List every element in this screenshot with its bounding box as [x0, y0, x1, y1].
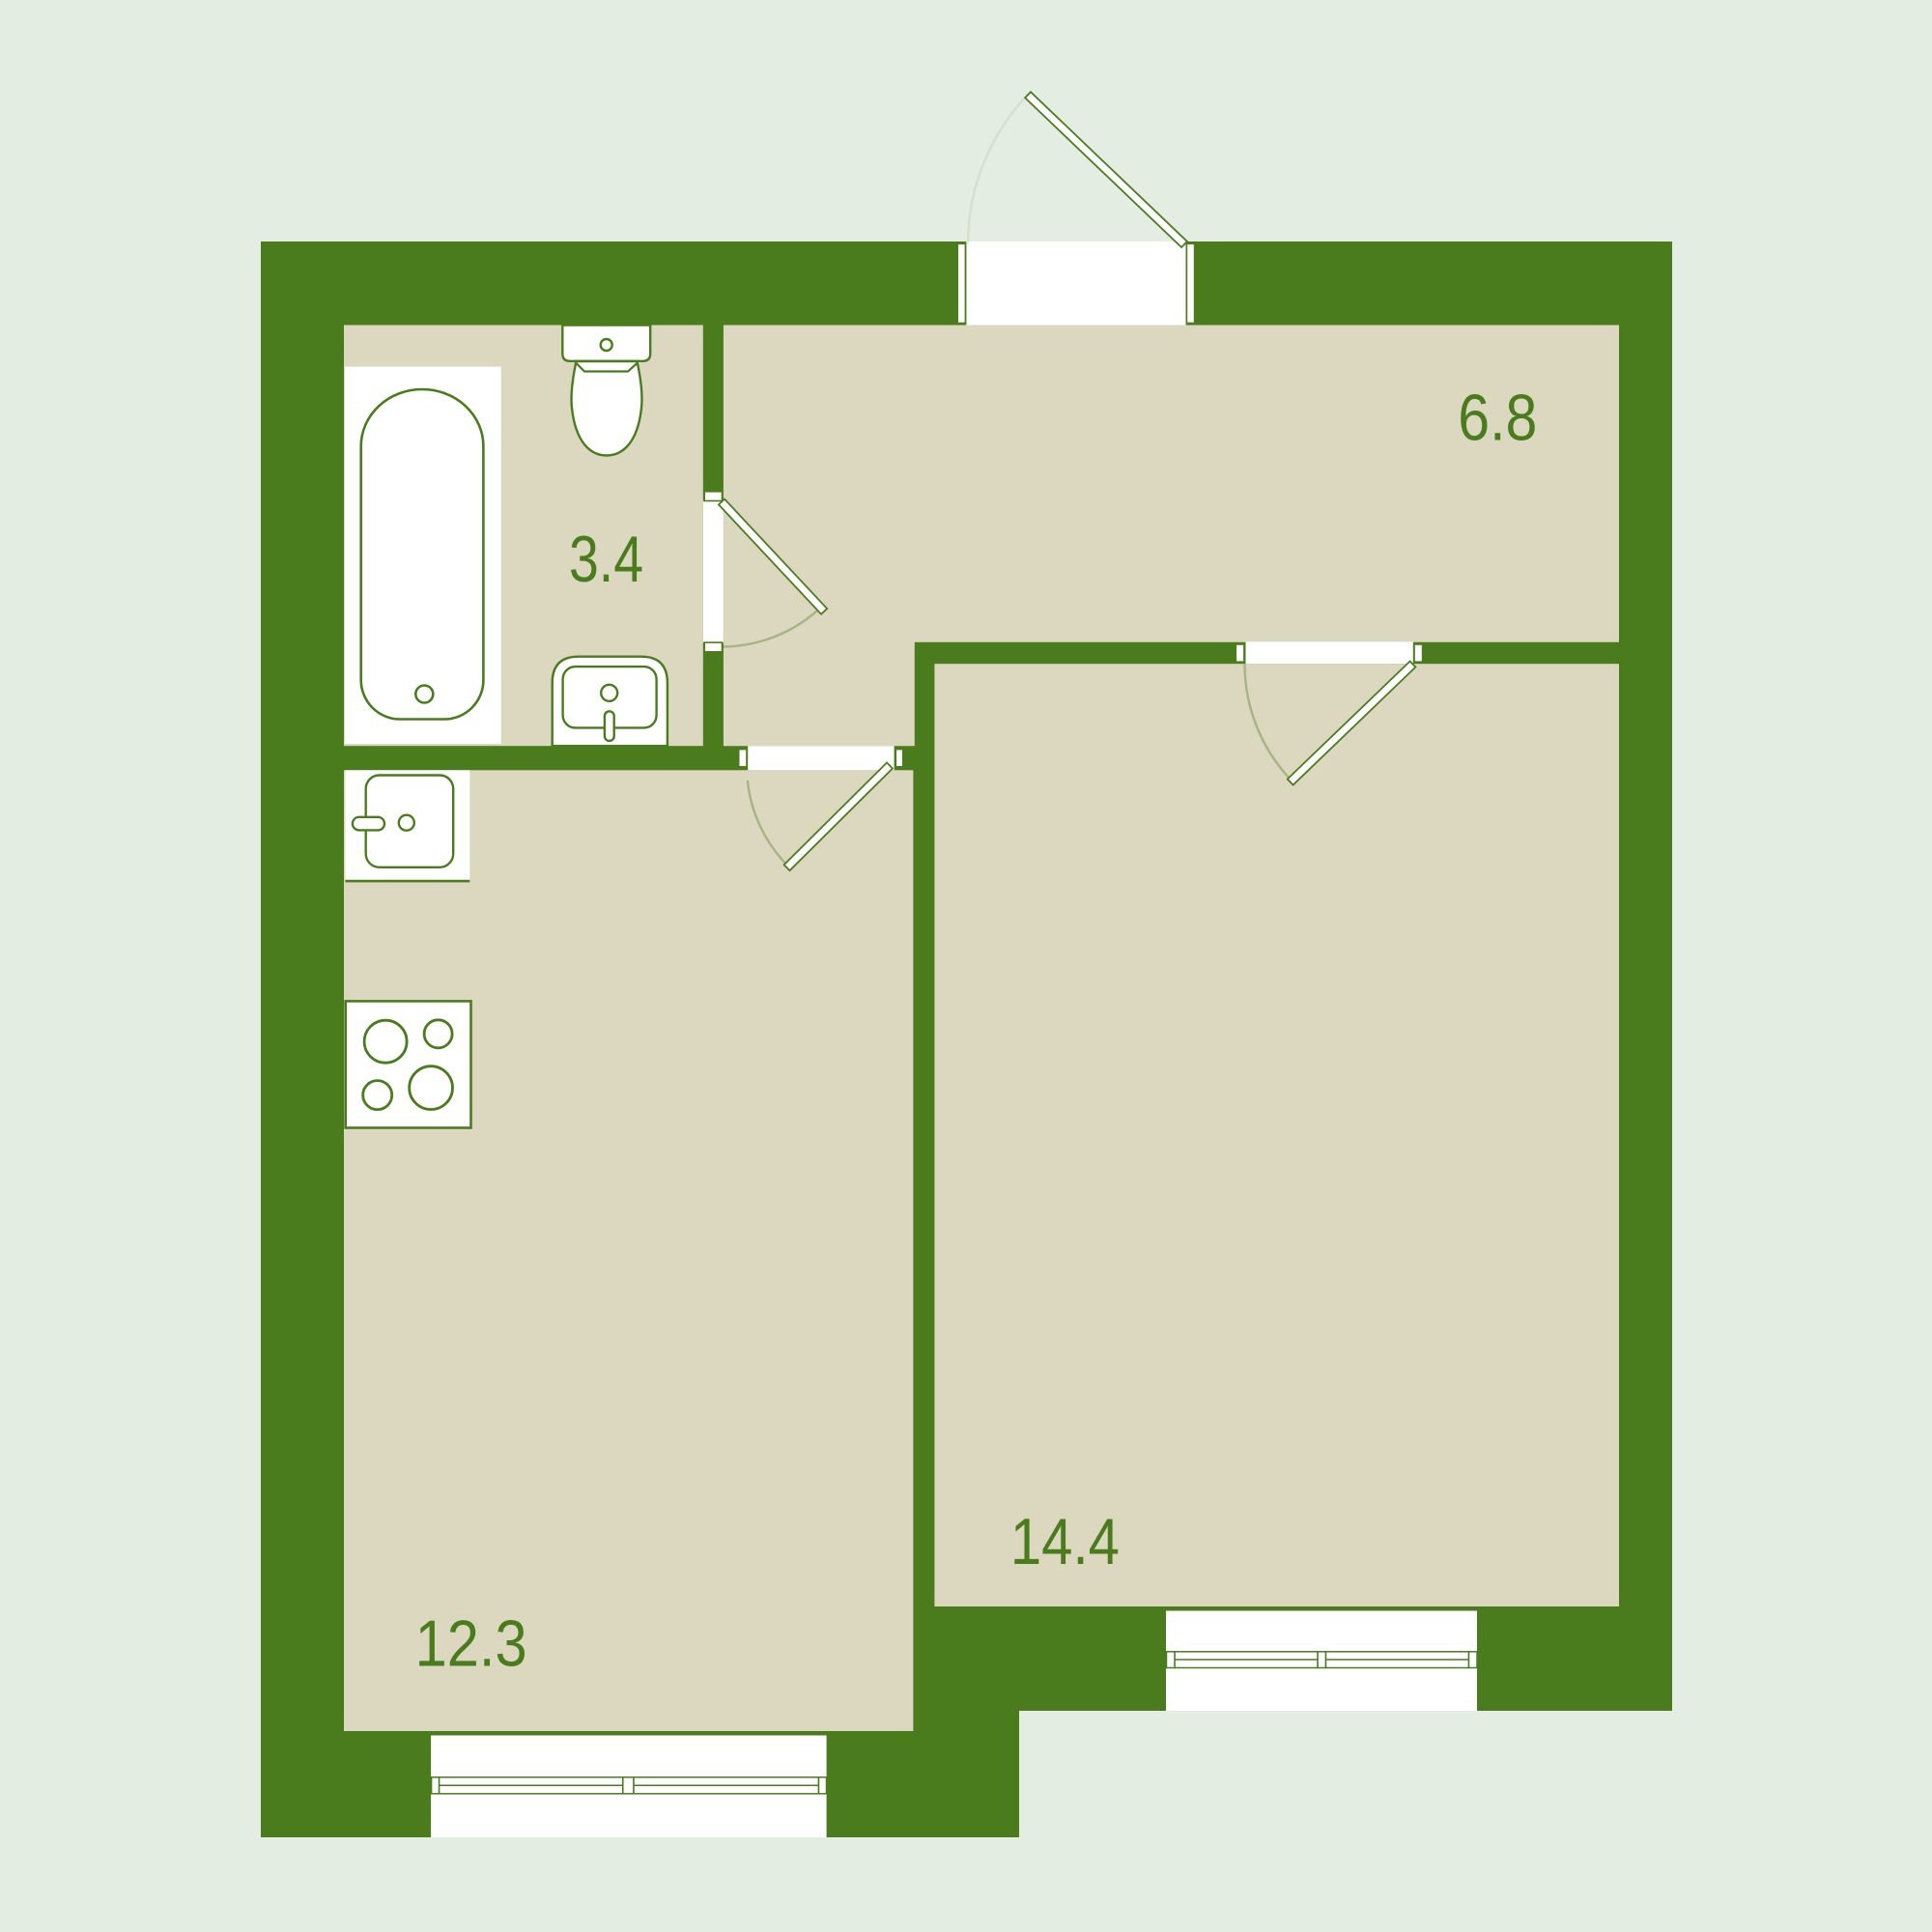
svg-text:3.4: 3.4 — [569, 523, 643, 596]
svg-text:6.8: 6.8 — [1458, 382, 1537, 455]
svg-text:12.3: 12.3 — [415, 1607, 527, 1681]
svg-text:14.4: 14.4 — [1010, 1505, 1120, 1578]
